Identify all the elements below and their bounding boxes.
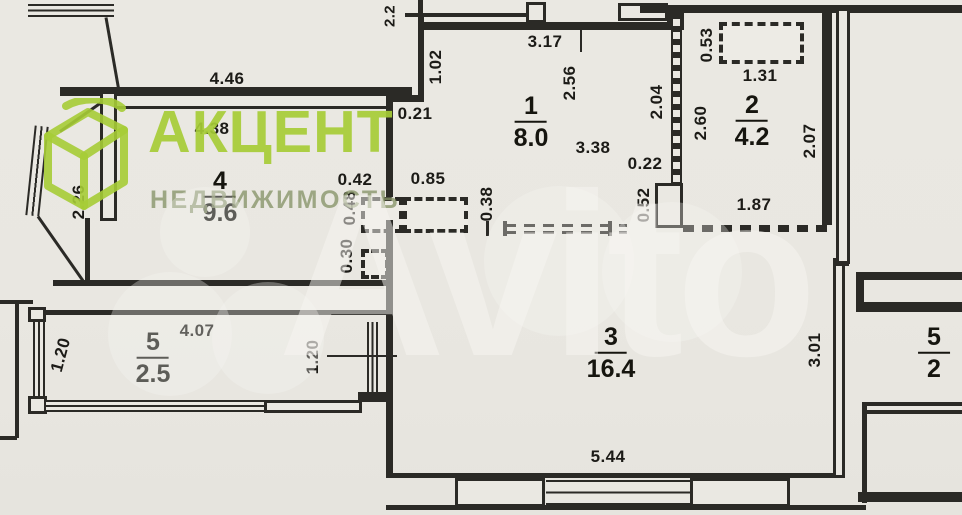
wall: [862, 410, 962, 414]
wall-diagonal: [37, 216, 85, 283]
agency-name: АКЦЕНТ: [148, 98, 394, 166]
room3-number: 3: [595, 324, 627, 354]
adjacent-room-label: 5 2: [918, 324, 950, 383]
wall: [455, 478, 545, 507]
dimension-line: [580, 30, 582, 52]
wall: [862, 403, 867, 503]
opening-end: [486, 221, 489, 236]
dim-hall-204: 2.04: [647, 85, 667, 120]
dim-hall-102: 1.02: [426, 50, 446, 85]
opening-end: [503, 221, 507, 236]
wall: [856, 302, 962, 312]
dim-balc-407: 4.07: [180, 321, 215, 341]
dimension-line: [327, 355, 397, 357]
window: [25, 126, 48, 217]
wall-hatched: [671, 13, 682, 185]
dim-bath-053: 0.53: [697, 28, 717, 63]
dim-top-22: 2.2: [382, 5, 399, 27]
wall: [15, 303, 19, 438]
room5-label: 5 2.5: [136, 329, 171, 388]
wall: [264, 400, 362, 413]
watermark-circle: [484, 186, 634, 336]
wall: [690, 478, 790, 507]
wall: [386, 505, 866, 510]
window: [367, 322, 378, 392]
dim-room3-301: 3.01: [805, 333, 825, 368]
wall: [0, 436, 17, 440]
room1-label: 1 8.0: [514, 93, 549, 152]
vent-shaft: [719, 22, 804, 64]
dim-bath-207: 2.07: [800, 124, 820, 159]
wall: [856, 272, 864, 312]
window: [28, 4, 114, 17]
dim-bath-187: 1.87: [737, 195, 772, 215]
wall: [405, 13, 545, 17]
vent-shaft: [361, 249, 389, 279]
dim-balc-120-left: 1.20: [47, 336, 75, 375]
room1-number: 1: [515, 93, 547, 123]
window: [46, 400, 264, 412]
window: [33, 322, 45, 398]
dim-mid-085: 0.85: [411, 169, 446, 189]
wall: [848, 5, 962, 13]
wall-corner: [28, 307, 46, 322]
wall: [833, 260, 845, 478]
dim-room4-226: 2.26: [69, 185, 89, 220]
room1-area: 8.0: [514, 123, 549, 151]
floor-plan: 4.46 4.38 2.26 2.2 1.02 0.21 3.17 2.56 3…: [0, 0, 962, 515]
duct-box: [655, 183, 683, 228]
wall-dashed: [683, 225, 833, 232]
window: [546, 480, 690, 505]
room5-number: 5: [137, 329, 169, 359]
room2-number: 2: [736, 92, 768, 122]
wall: [44, 310, 392, 315]
wall: [85, 218, 90, 282]
room2-label: 2 4.2: [735, 92, 770, 151]
agency-tagline: НЕДВИЖИМОСТЬ: [150, 186, 400, 215]
wall: [836, 8, 850, 264]
wall: [856, 272, 962, 280]
dim-room3-544: 5.44: [591, 447, 626, 467]
dim-hall-021: 0.21: [398, 104, 433, 124]
wall: [53, 280, 393, 286]
entry-door-jamb: [526, 2, 546, 23]
dim-balc-120-right: 1.20: [303, 340, 323, 375]
wall-diagonal: [59, 99, 105, 132]
dim-bath-052: 0.52: [634, 188, 654, 223]
wall: [862, 402, 962, 406]
dim-mid-030: 0.30: [337, 239, 357, 274]
dim-hall-317: 3.17: [528, 32, 563, 52]
dim-hall-338: 3.38: [576, 138, 611, 158]
vent-shaft: [403, 197, 468, 233]
wall: [100, 91, 117, 221]
wall: [386, 220, 393, 473]
watermark-circle: [212, 282, 324, 394]
adjacent-room-area: 2: [918, 354, 950, 382]
wall: [424, 22, 684, 30]
room3-label: 3 16.4: [587, 324, 636, 383]
room2-area: 4.2: [735, 122, 770, 150]
dim-bath-131: 1.31: [743, 66, 778, 86]
room5-area: 2.5: [136, 359, 171, 387]
opening-end: [608, 221, 612, 236]
room3-area: 16.4: [587, 354, 636, 382]
dim-bath-260: 2.60: [691, 106, 711, 141]
wall: [858, 492, 962, 502]
wall-diagonal: [105, 17, 121, 91]
dim-top-446: 4.46: [210, 69, 245, 89]
wall: [640, 5, 848, 13]
wall: [822, 13, 832, 225]
adjacent-room-number: 5: [918, 324, 950, 354]
dim-hall-256: 2.56: [560, 66, 580, 101]
dim-bath-022: 0.22: [628, 154, 663, 174]
wall-corner: [28, 396, 47, 414]
dim-mid-038: 0.38: [477, 187, 497, 222]
